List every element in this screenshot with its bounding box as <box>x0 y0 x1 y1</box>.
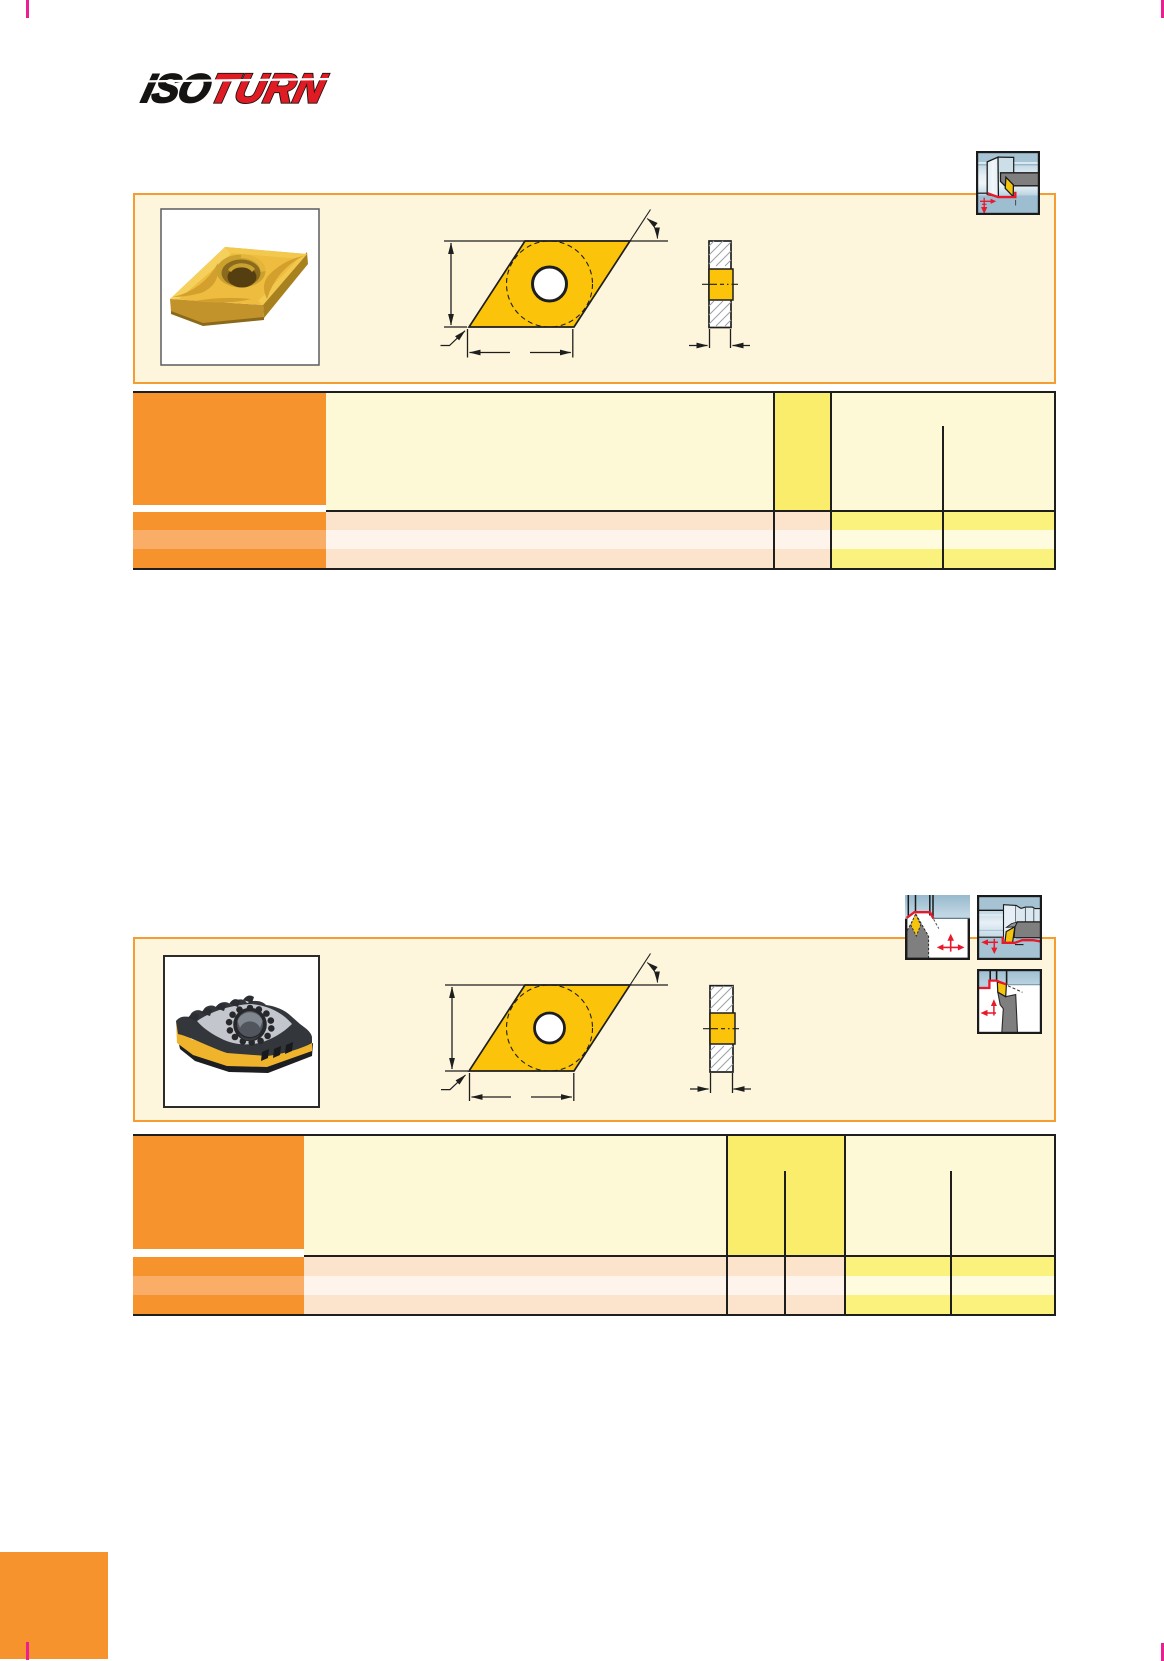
svg-text:ISO: ISO <box>138 66 216 110</box>
svg-text:TURN: TURN <box>206 66 332 110</box>
